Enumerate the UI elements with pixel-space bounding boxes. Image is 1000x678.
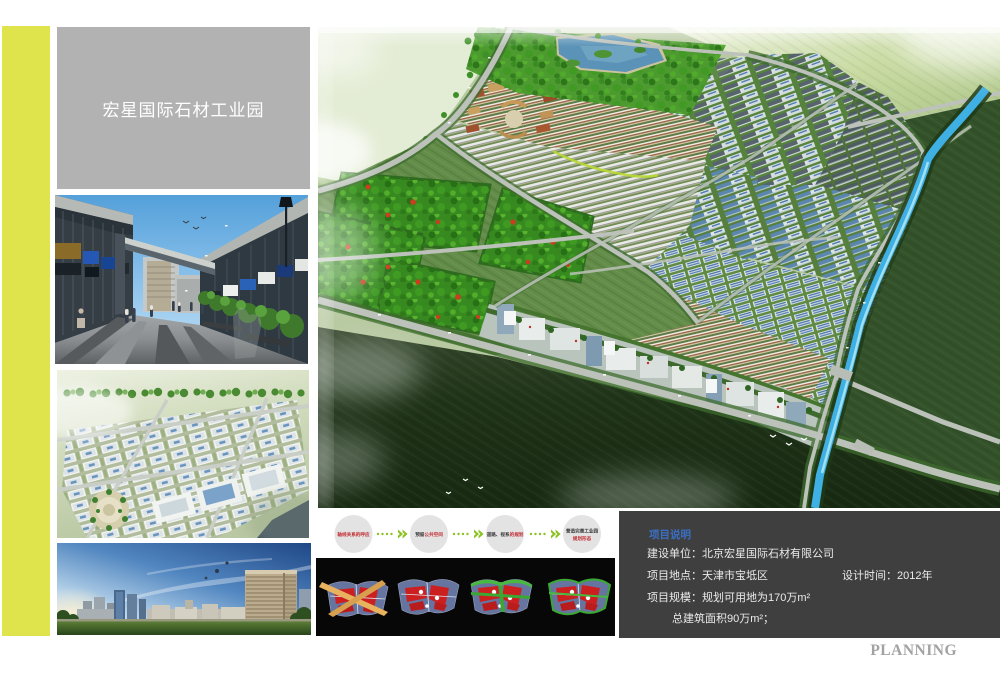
- svg-text:道路、视系的规划: 道路、视系的规划: [487, 531, 524, 538]
- svg-text:预留公共空间: 预留公共空间: [415, 531, 443, 538]
- svg-text:轴线关系的呼应: 轴线关系的呼应: [337, 531, 370, 538]
- svg-text:规划形态: 规划形态: [573, 535, 592, 542]
- svg-text:营造完善工业园: 营造完善工业园: [566, 528, 599, 535]
